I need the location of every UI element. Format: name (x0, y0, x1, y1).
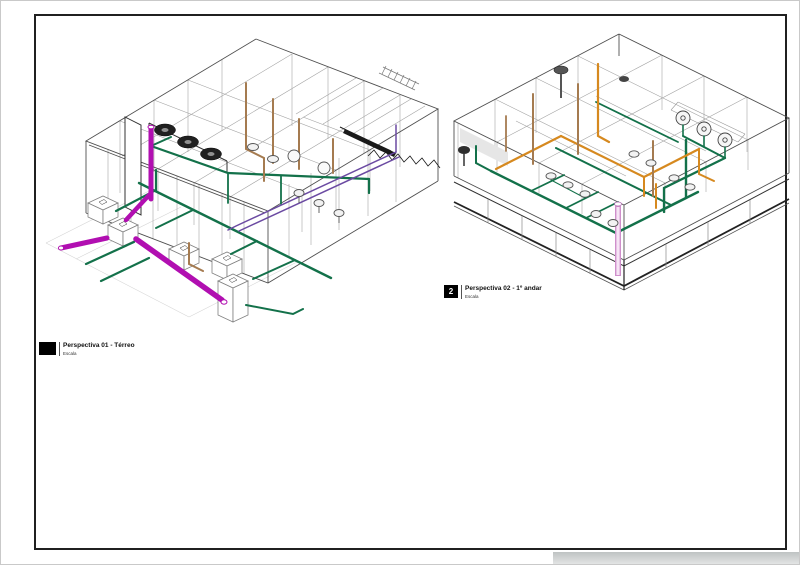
viewport-title-2: Perspectiva 02 - 1º andar (465, 285, 542, 292)
viewport-perspectiva-02-primeiro-andar[interactable] (446, 26, 796, 296)
drawing-sheet-page: Perspectiva 01 - Térreo Escala 2 Perspec… (0, 0, 800, 565)
viewport-perspectiva-01-terreo[interactable] (41, 21, 451, 341)
view2-hot-pipes-orange (496, 64, 714, 208)
view1-roof-hatch (379, 66, 419, 90)
sheet-corner-shadow (553, 552, 799, 565)
view1-drawing (41, 21, 451, 341)
viewport-title-1: Perspectiva 01 - Térreo (63, 342, 135, 349)
viewport-label-2[interactable]: 2 Perspectiva 02 - 1º andar Escala (444, 285, 542, 299)
viewport-scale-label-2: Escala (465, 294, 542, 299)
view1-vent-pipes-purple (228, 125, 399, 231)
viewport-number-box-1 (39, 342, 56, 355)
view1-wireframe-light (108, 54, 425, 274)
viewport-number-box-2: 2 (444, 285, 458, 298)
view2-drain-pipes-brown (506, 84, 653, 196)
view2-rain-pipe-pink (615, 202, 622, 276)
viewport-scale-label-1: Escala (63, 351, 135, 356)
view2-drawing (446, 26, 796, 296)
viewport-label-1[interactable]: Perspectiva 01 - Térreo Escala (39, 342, 135, 356)
view2-slab-bands (454, 179, 789, 290)
